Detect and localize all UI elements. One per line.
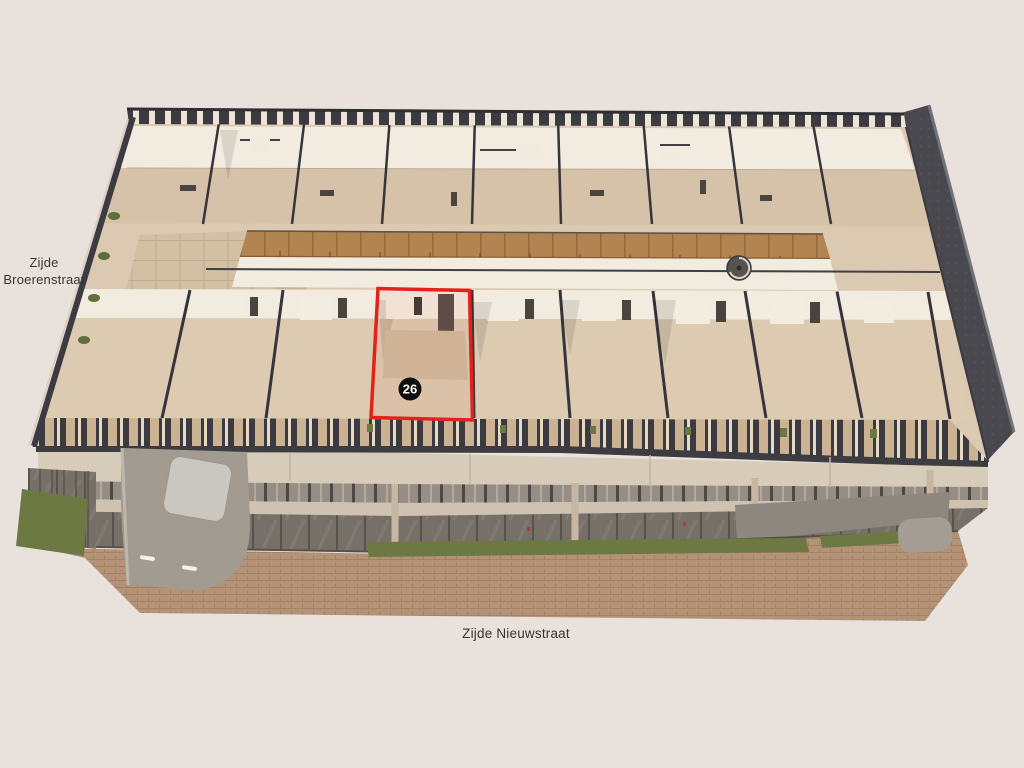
planter-green [88, 294, 100, 302]
floorplan-cutaway: 26 [29, 109, 988, 461]
unit-26[interactable]: 26 [371, 289, 473, 421]
unit-badge-number: 26 [403, 382, 417, 397]
label-nieuwstraat: Zijde Nieuwstraat [462, 626, 570, 641]
floorplan-render: 26 Zijde Broerenstraat Zijde Nieuwstraat [0, 0, 1024, 768]
planter-green [108, 212, 120, 220]
corner-bay-volume [897, 516, 953, 554]
label-broerenstraat-line1: Zijde [29, 255, 58, 270]
planter-green [78, 336, 90, 344]
lower-rooms-floors [45, 318, 968, 420]
grass-patch-left [16, 489, 88, 556]
entrance-canopy [162, 455, 233, 523]
unit-26-outline[interactable] [371, 289, 473, 421]
planter-green [98, 252, 110, 260]
spiral-staircase [727, 256, 751, 280]
label-broerenstraat-line2: Broerenstraat [3, 272, 85, 287]
upper-rooms-floors [99, 168, 929, 226]
spiral-stair-post [737, 266, 742, 271]
unit-26-badge[interactable]: 26 [399, 378, 422, 401]
stair-tower [121, 448, 250, 590]
gallery-wood-deck [240, 231, 830, 258]
floorplan-page: 26 Zijde Broerenstraat Zijde Nieuwstraat [0, 0, 1024, 768]
